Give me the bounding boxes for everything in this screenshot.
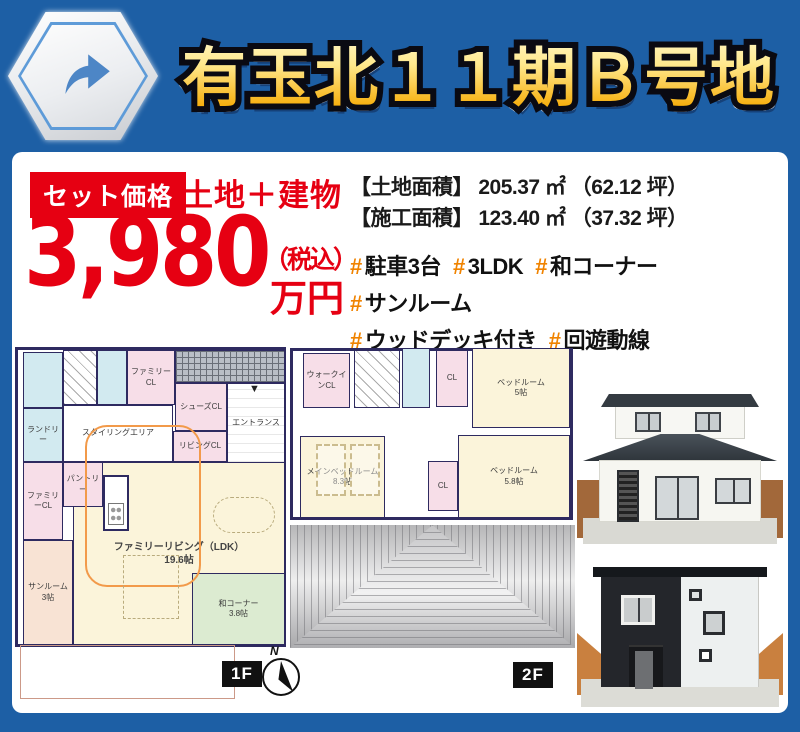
room-label: サンルーム 3帖 (24, 582, 72, 603)
floorplan-2f: ウォークインCLCLベッドルーム 5帖メインベッドルーム 8.3帖CLベッドルー… (290, 348, 575, 648)
hexagon-logo (8, 12, 158, 140)
large-window (655, 476, 699, 520)
room-sunroom: サンルーム 3帖 (23, 540, 73, 645)
entrance-door (629, 645, 663, 687)
hash-symbol: # (350, 254, 362, 279)
room-stairs (63, 350, 97, 405)
room-family-closet-north: ファミリーCL (127, 350, 175, 405)
hash-symbol: # (453, 254, 465, 279)
area-line: 【土地面積】 205.37 ㎡ （62.12 坪） (350, 172, 780, 203)
hashtag-line: #駐車3台#3LDK#和コーナー#サンルーム (350, 248, 780, 322)
header: 有玉北１１期Ｂ号地 有玉北１１期Ｂ号地 (0, 0, 800, 152)
stove-icon (108, 503, 124, 525)
room-label: ベッドルーム 5帖 (473, 378, 569, 399)
room-label: ファミリーCL (24, 491, 62, 512)
hashtag-lines: #駐車3台#3LDK#和コーナー#サンルーム#ウッドデッキ付き#回遊動線 (350, 248, 780, 359)
room-closet-mid: CL (428, 461, 458, 511)
room-walkin-closet: ウォークインCL (303, 353, 350, 408)
hashtag-text: 駐車3台 (365, 254, 441, 279)
room-label: ウォークインCL (304, 370, 349, 391)
room-label: シューズCL (176, 402, 226, 412)
roof-plan (290, 525, 575, 648)
room-entrance: エントランス (227, 383, 285, 463)
price-unit: 万円 (270, 268, 344, 322)
room-laundry: ランドリー (23, 408, 63, 462)
dining-table (123, 555, 179, 619)
area-lines: 【土地面積】 205.37 ㎡ （62.12 坪）【施工面積】 123.40 ㎡… (350, 172, 780, 234)
room-label: 和コーナー 3.8帖 (193, 599, 284, 620)
sofa (213, 497, 275, 533)
hashtag: #サンルーム (350, 291, 472, 316)
room-label: ランドリー (24, 425, 62, 446)
exterior-render-white-house (577, 388, 783, 550)
page-title: 有玉北１１期Ｂ号地 有玉北１１期Ｂ号地 (166, 20, 792, 136)
small-window (689, 589, 702, 601)
hashtag: #3LDK (453, 254, 523, 279)
kitchen-counter (103, 475, 129, 531)
roof-ridge (290, 525, 575, 648)
room-toilet-2f (402, 348, 430, 408)
room-closet-north: CL (436, 350, 468, 407)
compass-n-label: N (270, 644, 279, 658)
flyer-page: 有玉北１１期Ｂ号地 有玉北１１期Ｂ号地 セット価格 土地＋建物 3,980 （税… (0, 0, 800, 732)
share-arrow-icon (48, 46, 120, 106)
content-panel: セット価格 土地＋建物 3,980 （税込） 万円 【土地面積】 205.37 … (12, 152, 788, 713)
lower-roof (583, 434, 777, 461)
compass: N (258, 644, 306, 704)
exterior-render-black-white-house (577, 553, 783, 710)
room-label: エントランス (228, 418, 284, 428)
bed (350, 444, 380, 496)
room-stairs-2f (354, 350, 400, 408)
room-bedroom-58: ベッドルーム 5.8帖 (458, 435, 570, 518)
hashtag-text: サンルーム (365, 291, 472, 316)
room-shoes-closet: シューズCL (175, 383, 227, 431)
window (635, 412, 661, 432)
window (703, 611, 725, 635)
needle-icon (265, 661, 297, 693)
property-details: 【土地面積】 205.37 ㎡ （62.12 坪）【施工面積】 123.40 ㎡… (350, 172, 780, 359)
floorplan-1f: ランドリーファミリーCLファミリーCLシューズCLエントランスリビングCLスタイ… (15, 347, 288, 702)
room-porch (175, 350, 285, 383)
room-label: ファミリーCL (128, 367, 174, 388)
page-title-text: 有玉北１１期Ｂ号地 (166, 20, 792, 136)
louver-door (617, 470, 639, 522)
window (695, 412, 721, 432)
room-bedroom-5: ベッドルーム 5帖 (472, 348, 570, 428)
floor-badge-1f: 1F (222, 661, 262, 687)
hash-symbol: # (535, 254, 547, 279)
entrance-marker: ▼ (249, 383, 260, 395)
upper-roof (601, 394, 759, 407)
room-washitsu-corner: 和コーナー 3.8帖 (192, 573, 285, 645)
room-family-closet-west: ファミリーCL (23, 462, 63, 540)
price-amount: 3,980 (24, 202, 268, 303)
hashtag-text: 3LDK (468, 254, 523, 279)
hashtag: #駐車3台 (350, 254, 441, 279)
area-line: 【施工面積】 123.40 ㎡ （37.32 坪） (350, 203, 780, 234)
room-label: CL (429, 481, 457, 491)
hashtag-text: 和コーナー (550, 254, 658, 279)
room-label: ベッドルーム 5.8帖 (459, 466, 569, 487)
room-bathroom (23, 352, 63, 408)
bed (316, 444, 346, 496)
room-wood-deck (20, 645, 235, 699)
hashtag-text: 回遊動線 (564, 328, 650, 353)
flat-roof (593, 567, 767, 577)
floor-badge-2f: 2F (513, 662, 553, 688)
small-window (699, 649, 712, 662)
room-label: CL (437, 373, 467, 383)
window (715, 478, 751, 504)
hash-symbol: # (350, 291, 362, 316)
hashtag: #和コーナー (535, 254, 657, 279)
compass-needle (262, 658, 300, 696)
room-toilet (97, 350, 127, 405)
window (621, 595, 655, 625)
